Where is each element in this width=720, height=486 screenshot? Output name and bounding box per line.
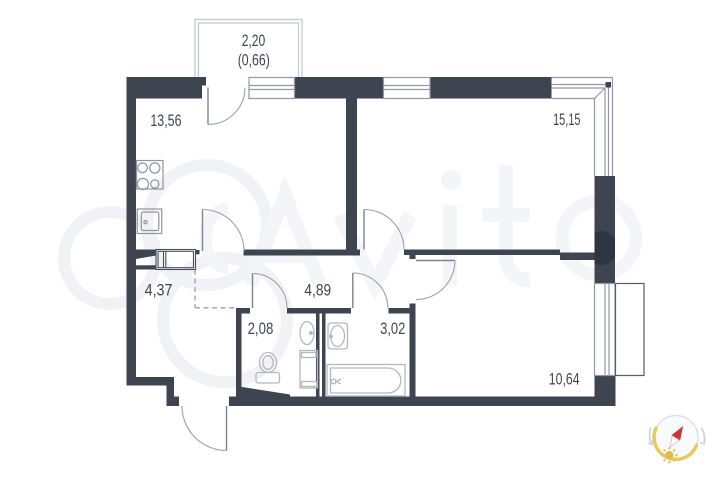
svg-text:10,64: 10,64	[549, 371, 580, 389]
svg-text:4,89: 4,89	[304, 282, 331, 300]
svg-text:13,56: 13,56	[150, 112, 181, 130]
svg-text:15,15: 15,15	[553, 111, 580, 129]
svg-text:2,08: 2,08	[248, 320, 274, 338]
svg-text:(0,66): (0,66)	[238, 52, 270, 70]
svg-text:3,02: 3,02	[380, 320, 405, 338]
svg-text:2,20: 2,20	[242, 32, 266, 50]
svg-text:4,37: 4,37	[145, 281, 173, 299]
